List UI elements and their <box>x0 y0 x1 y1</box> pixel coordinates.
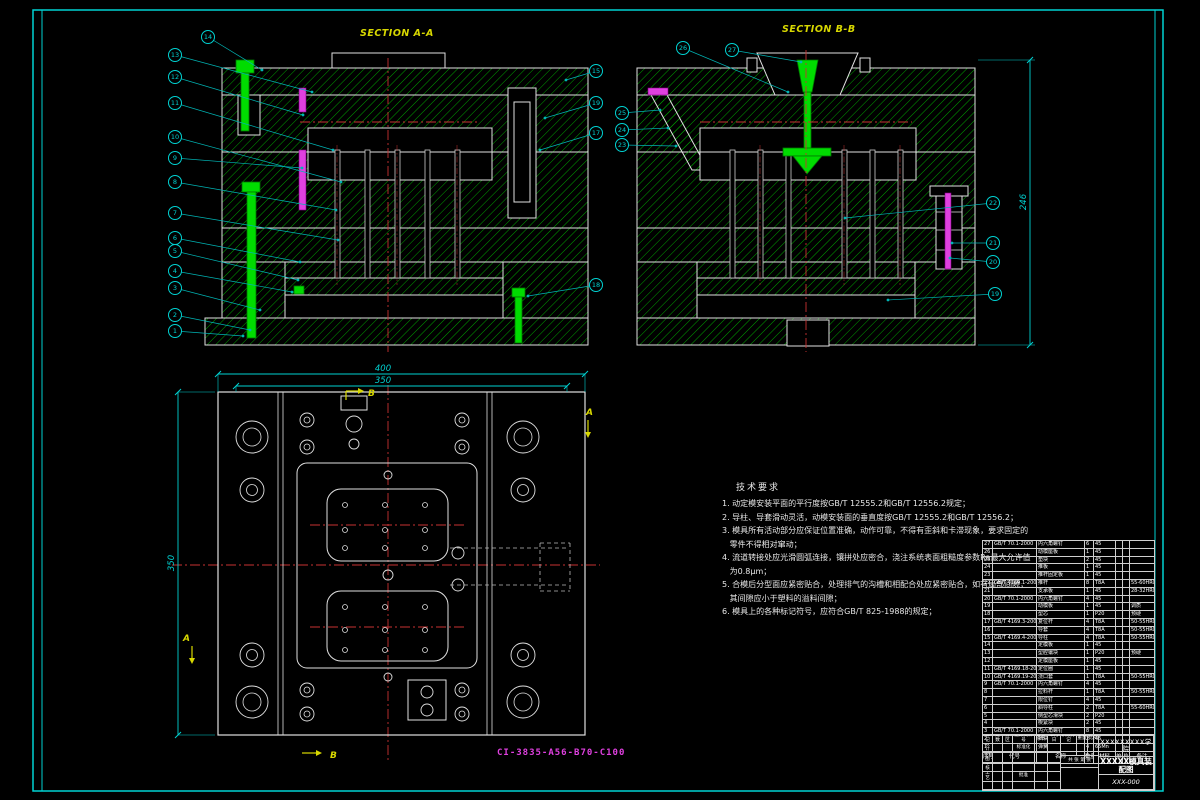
tech-requirement-line: 6. 模具上的各种标记符号，应符合GB/T 825-1988的规定； <box>722 605 980 619</box>
parts-list-cell-name: 导套 <box>1037 627 1085 634</box>
title-block-cell <box>993 772 1003 782</box>
parts-list-row: 18型芯1P20预硬 <box>982 610 1155 618</box>
parts-list-cell-mat: T8A <box>1094 580 1116 587</box>
parts-list-cell-no: 7 <box>983 697 993 704</box>
title-block-cell <box>1048 763 1061 772</box>
parts-list-cell-mat: P20 <box>1094 713 1116 720</box>
parts-list-cell-w2 <box>1123 596 1130 603</box>
parts-list-cell-name: 内六角螺钉 <box>1037 596 1085 603</box>
title-block-cell <box>1088 744 1099 756</box>
parts-list-cell-code: GB/T 4169.18-2006 <box>993 666 1037 673</box>
parts-list-cell-mat: 45 <box>1094 720 1116 727</box>
parts-list-cell-mat: T8A <box>1094 619 1116 626</box>
parts-list-cell-code <box>993 603 1037 610</box>
title-block-cell <box>993 763 1003 772</box>
parts-list-cell-w2 <box>1123 658 1130 665</box>
parts-list-cell-code <box>993 720 1037 727</box>
mold-base-code: CI-3835-A56-B70-C100 <box>497 748 625 758</box>
parts-list-cell-w1 <box>1116 619 1123 626</box>
parts-list-row: 17GB/T 4169.3-2006复位杆4T8A50-55HRC <box>982 618 1155 626</box>
title-block-cell <box>1035 772 1048 782</box>
parts-list-cell-w1 <box>1116 681 1123 688</box>
mold-plates <box>205 68 975 345</box>
parts-list-cell-code <box>993 557 1037 564</box>
parts-list-row: 23推杆固定板145 <box>982 571 1155 579</box>
parts-list-row: 20GB/T 70.1-2000内六角螺钉445 <box>982 595 1155 603</box>
parts-list-cell-w2 <box>1123 697 1130 704</box>
parts-list-cell-note <box>1130 596 1155 603</box>
balloon-number: 4 <box>173 267 177 275</box>
parts-list-cell-no: 5 <box>983 713 993 720</box>
parts-list-cell-qty: 1 <box>1085 666 1094 673</box>
title-block-cell <box>1035 753 1048 763</box>
section_a-label: SECTION A-A <box>360 28 434 39</box>
parts-list-row: 4楔紧块245 <box>982 719 1155 727</box>
parts-list-cell-no: 15 <box>983 635 993 642</box>
parts-list-cell-note: 50-55HRC <box>1130 619 1155 626</box>
balloon-number: 19 <box>991 290 999 298</box>
title-block-cell: 制图 <box>983 753 993 763</box>
parts-list-cell-note <box>1130 564 1155 571</box>
view-letter: B <box>330 751 337 761</box>
parts-list-cell-w1 <box>1116 572 1123 579</box>
parts-list-cell-code <box>993 705 1037 712</box>
parts-list-cell-name: 推杆固定板 <box>1037 572 1085 579</box>
balloon-number: 7 <box>173 209 177 217</box>
parts-list-cell-mat: T8A <box>1094 627 1116 634</box>
parts-list-cell-qty: 2 <box>1085 713 1094 720</box>
parts-list-cell-w2 <box>1123 549 1130 556</box>
parts-list-row: 13型腔镶块1P20预硬 <box>982 649 1155 657</box>
parts-list-cell-note <box>1130 697 1155 704</box>
balloon-number: 18 <box>592 281 600 289</box>
parts-list-cell-no: 16 <box>983 627 993 634</box>
parts-list-row: 22GB/T 4169.1-2006推杆8T8A55-60HRC <box>982 579 1155 587</box>
parts-list-cell-w2 <box>1123 611 1130 618</box>
parts-list-cell-note: 50-55HRC <box>1130 674 1155 681</box>
parts-list-cell-w1 <box>1116 720 1123 727</box>
parts-list-cell-qty: 6 <box>1085 541 1094 548</box>
parts-list-cell-note: 50-55HRC <box>1130 689 1155 696</box>
parts-list-cell-note <box>1130 681 1155 688</box>
title-block-drawing-number: XXX-000 <box>1099 775 1154 790</box>
parts-list-row: 24推板145 <box>982 563 1155 571</box>
title-block-cell <box>993 753 1003 763</box>
parts-list-cell-name: 内六角螺钉 <box>1037 541 1085 548</box>
parts-list-cell-w1 <box>1116 642 1123 649</box>
balloon-number: 10 <box>171 133 179 141</box>
balloon-number: 2 <box>173 311 177 319</box>
parts-list-cell-w1 <box>1116 666 1123 673</box>
parts-list-cell-qty: 4 <box>1085 635 1094 642</box>
section_b-label: SECTION B-B <box>782 24 856 35</box>
balloon-number: 12 <box>171 73 179 81</box>
parts-list-cell-w2 <box>1123 603 1130 610</box>
parts-list-cell-mat: T8A <box>1094 689 1116 696</box>
parts-list-cell-mat: 45 <box>1094 666 1116 673</box>
parts-list-row: 7限位钉445 <box>982 696 1155 704</box>
parts-list-cell-mat: 45 <box>1094 588 1116 595</box>
balloon-number: 9 <box>173 154 177 162</box>
parts-list-row: 11GB/T 4169.18-2006定位圈145 <box>982 665 1155 673</box>
parts-list-cell-w1 <box>1116 603 1123 610</box>
parts-list-cell-qty: 4 <box>1085 697 1094 704</box>
parts-list-cell-qty: 4 <box>1085 619 1094 626</box>
parts-list-cell-no: 17 <box>983 619 993 626</box>
balloon-number: 25 <box>618 109 626 117</box>
parts-list-cell-no: 18 <box>983 611 993 618</box>
parts-list-cell-w2 <box>1123 564 1130 571</box>
parts-list-cell-w1 <box>1116 697 1123 704</box>
parts-list-cell-no: 12 <box>983 658 993 665</box>
parts-list-cell-mat: P20 <box>1094 650 1116 657</box>
parts-list-cell-note: 50-55HRC <box>1130 635 1155 642</box>
parts-list-cell-name: 侧型芯滑块 <box>1037 713 1085 720</box>
title-block-cell <box>1061 768 1099 790</box>
parts-list-cell-code: GB/T 4169.3-2006 <box>993 619 1037 626</box>
parts-list-cell-no: 6 <box>983 705 993 712</box>
dimension-label: 350 <box>375 376 391 386</box>
parts-list-cell-mat: 45 <box>1094 681 1116 688</box>
parts-list-row: 12定模座板145 <box>982 657 1155 665</box>
parts-list-cell-w2 <box>1123 572 1130 579</box>
parts-list-cell-no: 21 <box>983 588 993 595</box>
balloon-number: 21 <box>989 239 997 247</box>
balloon-number: 17 <box>592 129 600 137</box>
balloon-number: 15 <box>592 67 600 75</box>
title-block-drawing-title: XXXXX模具装配图 <box>1099 757 1154 775</box>
parts-list-cell-note: 预硬 <box>1130 650 1155 657</box>
parts-list-cell-qty: 4 <box>1085 596 1094 603</box>
balloon-number: 23 <box>618 141 626 149</box>
title-block-cell <box>1048 772 1061 782</box>
parts-list-cell-code <box>993 697 1037 704</box>
parts-list-cell-w1 <box>1116 713 1123 720</box>
parts-list-cell-name: 定位圈 <box>1037 666 1085 673</box>
parts-list-cell-name: 斜导柱 <box>1037 705 1085 712</box>
parts-list-cell-w2 <box>1123 557 1130 564</box>
parts-list-cell-note: 28-32HRC <box>1130 588 1155 595</box>
balloon-number: 1 <box>173 327 177 335</box>
parts-list-cell-qty: 1 <box>1085 549 1094 556</box>
parts-list-cell-w1 <box>1116 549 1123 556</box>
parts-list-cell-code <box>993 658 1037 665</box>
parts-list-row: 9GB/T 70.1-2000内六角螺钉445 <box>982 680 1155 688</box>
parts-list-row: 15GB/T 4169.4-2006导柱4T8A50-55HRC <box>982 634 1155 642</box>
parts-list-cell-w1 <box>1116 674 1123 681</box>
parts-list-cell-w1 <box>1116 705 1123 712</box>
parts-list-cell-w1 <box>1116 541 1123 548</box>
parts-list-cell-code <box>993 713 1037 720</box>
parts-list-cell-name: 垫块 <box>1037 557 1085 564</box>
parts-list-cell-mat: 45 <box>1094 549 1116 556</box>
parts-list-cell-qty: 1 <box>1085 564 1094 571</box>
parts-list-row: 6斜导柱2T8A55-60HRC <box>982 704 1155 712</box>
balloon-number: 14 <box>204 33 212 41</box>
parts-list-cell-qty: 4 <box>1085 627 1094 634</box>
balloon-number: 27 <box>728 46 736 54</box>
parts-list-cell-mat: 45 <box>1094 572 1116 579</box>
parts-list-cell-mat: 45 <box>1094 541 1116 548</box>
parts-list-cell-w1 <box>1116 611 1123 618</box>
parts-list-cell-note: 50-55HRC <box>1130 627 1155 634</box>
tech-requirement-line: 零件不得相对窜动； <box>722 538 980 552</box>
parts-list-cell-qty: 1 <box>1085 588 1094 595</box>
title-block-cell: 标记 <box>983 735 993 744</box>
parts-list-cell-no: 4 <box>983 720 993 727</box>
title-block-cell: 重量 <box>1077 735 1088 744</box>
parts-list-cell-name: 动模板 <box>1037 603 1085 610</box>
balloon-number: 11 <box>171 99 179 107</box>
title-block-cell <box>1077 744 1088 756</box>
parts-list-cell-no: 25 <box>983 557 993 564</box>
parts-list-cell-no: 24 <box>983 564 993 571</box>
cad-sheet: 4003503502461413121110987654321151917182… <box>0 0 1200 800</box>
parts-list-cell-w1 <box>1116 658 1123 665</box>
parts-list-row: 27GB/T 70.1-2000内六角螺钉645 <box>982 540 1155 548</box>
parts-list-row: 26动模座板145 <box>982 548 1155 556</box>
title-block-cell <box>1003 763 1013 772</box>
parts-list-cell-qty: 4 <box>1085 681 1094 688</box>
parts-list-cell-code: GB/T 70.1-2000 <box>993 596 1037 603</box>
title-block-cell <box>1003 772 1013 782</box>
tech-requirement-line: 其间隙应小于塑料的溢料间隙； <box>722 592 980 606</box>
parts-list-cell-qty: 2 <box>1085 720 1094 727</box>
parts-list-cell-w2 <box>1123 541 1130 548</box>
tech-requirement-line: 5. 合模后分型面应紧密贴合，处理排气的沟槽和相配合处应紧密贴合，如有局部间隙， <box>722 578 980 592</box>
view-letter: B <box>368 389 375 399</box>
parts-list-cell-code <box>993 611 1037 618</box>
balloon-number: 20 <box>989 258 997 266</box>
title-block-cell: 审核 <box>983 763 993 772</box>
parts-list-cell-note <box>1130 720 1155 727</box>
parts-list-cell-w2 <box>1123 674 1130 681</box>
parts-list-row: 16导套4T8A50-55HRC <box>982 626 1155 634</box>
parts-list-cell-mat: 45 <box>1094 596 1116 603</box>
parts-list-row: 5侧型芯滑块2P20 <box>982 712 1155 720</box>
balloon-number: 22 <box>989 199 997 207</box>
parts-list-cell-no: 8 <box>983 689 993 696</box>
balloon-number: 24 <box>618 126 626 134</box>
parts-list-cell-name: 定模板 <box>1037 642 1085 649</box>
title-block-cell <box>1013 782 1035 790</box>
parts-list-cell-mat: 45 <box>1094 697 1116 704</box>
parts-list-cell-mat: 45 <box>1094 557 1116 564</box>
parts-list-cell-name: 复位杆 <box>1037 619 1085 626</box>
tech-requirement-line: 为0.8μm； <box>722 565 980 579</box>
balloon-number: 26 <box>679 44 687 52</box>
dimension-label: 350 <box>167 555 177 571</box>
parts-list-cell-no: 27 <box>983 541 993 548</box>
parts-list-cell-name: 浇口套 <box>1037 674 1085 681</box>
title-block-cell <box>1048 782 1061 790</box>
parts-list-cell-code <box>993 549 1037 556</box>
title-block-cell <box>993 744 1003 753</box>
parts-list-cell-name: 推杆 <box>1037 580 1085 587</box>
dimension-label: 400 <box>375 364 391 374</box>
parts-list-cell-w1 <box>1116 557 1123 564</box>
title-block-cell <box>1013 753 1035 763</box>
parts-list-cell-note: 预硬 <box>1130 611 1155 618</box>
parts-list-cell-w1 <box>1116 635 1123 642</box>
parts-list-cell-qty: 2 <box>1085 557 1094 564</box>
parts-list-cell-no: 9 <box>983 681 993 688</box>
tech-requirement-line: 2. 导柱、导套滑动灵活，动模安装面的垂直度按GB/T 12555.2和GB/T… <box>722 511 980 525</box>
parts-list-cell-w1 <box>1116 627 1123 634</box>
parts-list-cell-mat: T8A <box>1094 635 1116 642</box>
parts-list-cell-w2 <box>1123 681 1130 688</box>
title-block-cell: 工艺 <box>983 772 993 782</box>
title-block-cell <box>983 782 993 790</box>
parts-list-cell-w2 <box>1123 642 1130 649</box>
parts-list-cell-w1 <box>1116 588 1123 595</box>
parts-list-cell-note: 调质 <box>1130 603 1155 610</box>
title-block-cell: 设计 <box>983 744 993 753</box>
parts-list-cell-w2 <box>1123 705 1130 712</box>
title-block-cell <box>1035 763 1048 772</box>
parts-list-cell-code: GB/T 70.1-2000 <box>993 541 1037 548</box>
parts-list-cell-mat: 45 <box>1094 564 1116 571</box>
title-block-sheets: 共 张 第 张 <box>1061 756 1099 768</box>
parts-list-cell-name: 动模座板 <box>1037 549 1085 556</box>
parts-list-cell-w2 <box>1123 588 1130 595</box>
parts-list-cell-code <box>993 588 1037 595</box>
parts-list-cell-note <box>1130 572 1155 579</box>
parts-list-cell-w2 <box>1123 580 1130 587</box>
title-block-cell <box>1003 744 1013 753</box>
parts-list-cell-qty: 1 <box>1085 572 1094 579</box>
title-block-cell: 比例 <box>1088 735 1099 744</box>
parts-list-cell-note: 55-60HRC <box>1130 580 1155 587</box>
parts-list-cell-w2 <box>1123 713 1130 720</box>
title-block-cell <box>1048 744 1061 753</box>
parts-list-cell-note <box>1130 658 1155 665</box>
parts-list-cell-w1 <box>1116 580 1123 587</box>
parts-list-cell-w2 <box>1123 666 1130 673</box>
parts-list-cell-code: GB/T 4169.1-2006 <box>993 580 1037 587</box>
balloon-number: 5 <box>173 247 177 255</box>
balloon-number: 19 <box>592 99 600 107</box>
parts-list-cell-note <box>1130 713 1155 720</box>
parts-list-table: 27GB/T 70.1-2000内六角螺钉64526动模座板14525垫块245… <box>982 540 1155 764</box>
technical-requirements-title: 技术要求 <box>736 480 980 493</box>
parts-list-cell-code <box>993 627 1037 634</box>
balloon-number: 6 <box>173 234 177 242</box>
parts-list-cell-code <box>993 642 1037 649</box>
tech-requirement-line: 1. 动定模安装平面的平行度按GB/T 12555.2和GB/T 12556.2… <box>722 497 980 511</box>
tech-requirement-line: 3. 模具所有活动部分应保证位置准确，动作可靠，不得有歪斜和卡滞现象，要求固定的 <box>722 524 980 538</box>
parts-list-cell-no: 23 <box>983 572 993 579</box>
parts-list-cell-code <box>993 572 1037 579</box>
parts-list-cell-qty: 2 <box>1085 705 1094 712</box>
title-block-cell <box>1013 763 1035 772</box>
parts-list-cell-name: 定模座板 <box>1037 658 1085 665</box>
parts-list-cell-code <box>993 564 1037 571</box>
parts-list-cell-name: 导柱 <box>1037 635 1085 642</box>
parts-list-cell-name: 型腔镶块 <box>1037 650 1085 657</box>
parts-list-cell-code: GB/T 4169.4-2006 <box>993 635 1037 642</box>
title-block-cell: 阶段标记 <box>1061 735 1077 744</box>
parts-list-row: 25垫块245 <box>982 556 1155 564</box>
parts-list-cell-mat: 45 <box>1094 642 1116 649</box>
parts-list-cell-mat: 45 <box>1094 658 1116 665</box>
balloon-number: 8 <box>173 178 177 186</box>
title-block-cell: 处数 <box>993 735 1003 744</box>
title-block-cell <box>1061 744 1077 756</box>
dimension-label: 246 <box>1019 193 1029 210</box>
parts-list-cell-no: 10 <box>983 674 993 681</box>
parts-list-cell-name: 内六角螺钉 <box>1037 681 1085 688</box>
title-block-school: XXXXXXXXX学院 <box>1099 735 1154 757</box>
parts-list-cell-note <box>1130 549 1155 556</box>
parts-list-cell-w1 <box>1116 596 1123 603</box>
title-block-cell: 分区 <box>1003 735 1013 744</box>
parts-list-cell-qty: 1 <box>1085 689 1094 696</box>
parts-list-row: 14定模板145 <box>982 641 1155 649</box>
parts-list-cell-name: 楔紧块 <box>1037 720 1085 727</box>
parts-list-cell-no: 22 <box>983 580 993 587</box>
parts-list-cell-note <box>1130 557 1155 564</box>
view-letter: A <box>182 634 190 644</box>
parts-list-cell-w2 <box>1123 619 1130 626</box>
balloon-number: 3 <box>173 284 177 292</box>
title-block-cell <box>1035 744 1048 753</box>
parts-list-cell-note <box>1130 666 1155 673</box>
parts-list-cell-no: 14 <box>983 642 993 649</box>
title-block-cell: 年月日 <box>1048 735 1061 744</box>
parts-list-cell-name: 支承板 <box>1037 588 1085 595</box>
title-block-cell <box>993 782 1003 790</box>
parts-list-cell-no: 26 <box>983 549 993 556</box>
title-block-cell <box>1003 753 1013 763</box>
tech-requirement-line: 4. 流道转接处应光滑圆弧连接，镶拼处应密合，浇注系统表面粗糙度参数Ra最大允许… <box>722 551 980 565</box>
parts-list-cell-qty: 1 <box>1085 611 1094 618</box>
parts-list-cell-qty: 1 <box>1085 674 1094 681</box>
parts-list-cell-w2 <box>1123 635 1130 642</box>
parts-list-cell-no: 11 <box>983 666 993 673</box>
parts-list-row: 19动模板145调质 <box>982 602 1155 610</box>
title-block-cell: 批准 <box>1013 772 1035 782</box>
parts-list-cell-w1 <box>1116 564 1123 571</box>
title-block-cell <box>1035 782 1048 790</box>
parts-list-cell-qty: 8 <box>1085 580 1094 587</box>
parts-list-cell-name: 推板 <box>1037 564 1085 571</box>
parts-list-cell-qty: 1 <box>1085 658 1094 665</box>
view-letter: A <box>585 408 593 418</box>
title-block-cell <box>1048 753 1061 763</box>
parts-list-row: 10GB/T 4169.19-2006浇口套1T8A50-55HRC <box>982 673 1155 681</box>
title-block-cell <box>1003 782 1013 790</box>
parts-list-cell-no: 13 <box>983 650 993 657</box>
title-block-cell: 更改文件号 <box>1013 735 1035 744</box>
parts-list-cell-code: GB/T 70.1-2000 <box>993 681 1037 688</box>
parts-list-cell-name: 拉料杆 <box>1037 689 1085 696</box>
parts-list-cell-qty: 1 <box>1085 603 1094 610</box>
plan-view <box>218 392 585 735</box>
parts-list-cell-code <box>993 689 1037 696</box>
parts-list-cell-qty: 1 <box>1085 642 1094 649</box>
parts-list-cell-w2 <box>1123 650 1130 657</box>
title-block-cell: 标准化 <box>1013 744 1035 753</box>
title-block-cell: 签名 <box>1035 735 1048 744</box>
title-block: 标记处数分区更改文件号签名年月日设计标准化制图审核工艺批准阶段标记重量比例共 张… <box>982 734 1155 791</box>
parts-list-cell-note <box>1130 541 1155 548</box>
technical-requirements: 技术要求 1. 动定模安装平面的平行度按GB/T 12555.2和GB/T 12… <box>722 480 980 619</box>
balloon-number: 13 <box>171 51 179 59</box>
parts-list-cell-note: 55-60HRC <box>1130 705 1155 712</box>
parts-list-cell-name: 型芯 <box>1037 611 1085 618</box>
parts-list-cell-w2 <box>1123 720 1130 727</box>
